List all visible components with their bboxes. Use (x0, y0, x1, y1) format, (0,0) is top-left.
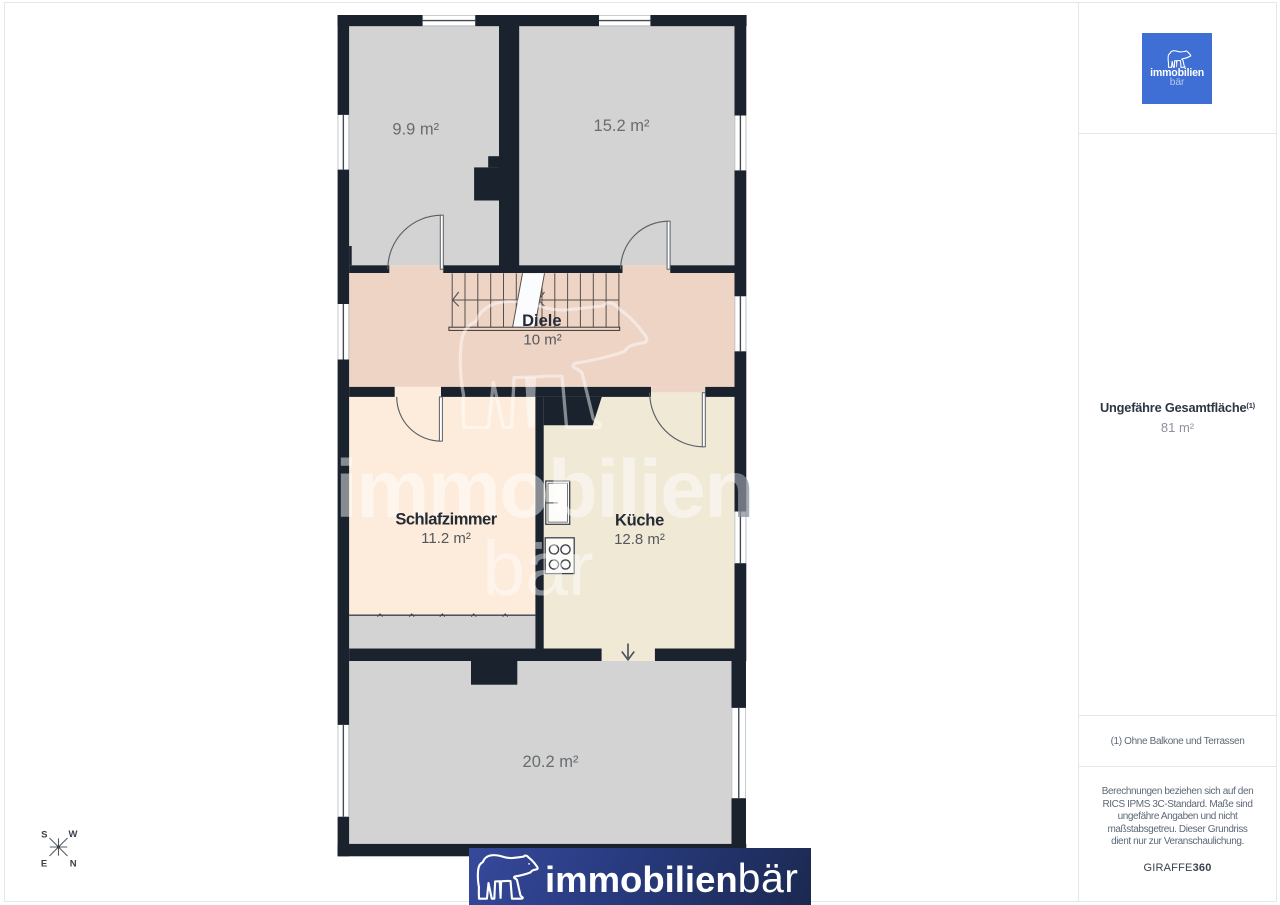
svg-text:W: W (69, 829, 78, 840)
svg-text:20.2 m²: 20.2 m² (523, 753, 579, 771)
svg-text:11.2 m²: 11.2 m² (421, 530, 471, 547)
svg-text:Diele: Diele (522, 312, 561, 330)
svg-text:12.8 m²: 12.8 m² (614, 531, 665, 548)
svg-text:Küche: Küche (615, 512, 664, 530)
svg-text:N: N (70, 859, 77, 870)
svg-text:10 m²: 10 m² (523, 332, 561, 349)
svg-text:S: S (41, 829, 47, 840)
svg-text:9.9 m²: 9.9 m² (392, 121, 439, 139)
svg-text:E: E (41, 858, 47, 869)
svg-text:Schlafzimmer: Schlafzimmer (395, 510, 497, 528)
svg-text:bär: bär (482, 526, 593, 612)
svg-text:15.2 m²: 15.2 m² (594, 117, 650, 135)
